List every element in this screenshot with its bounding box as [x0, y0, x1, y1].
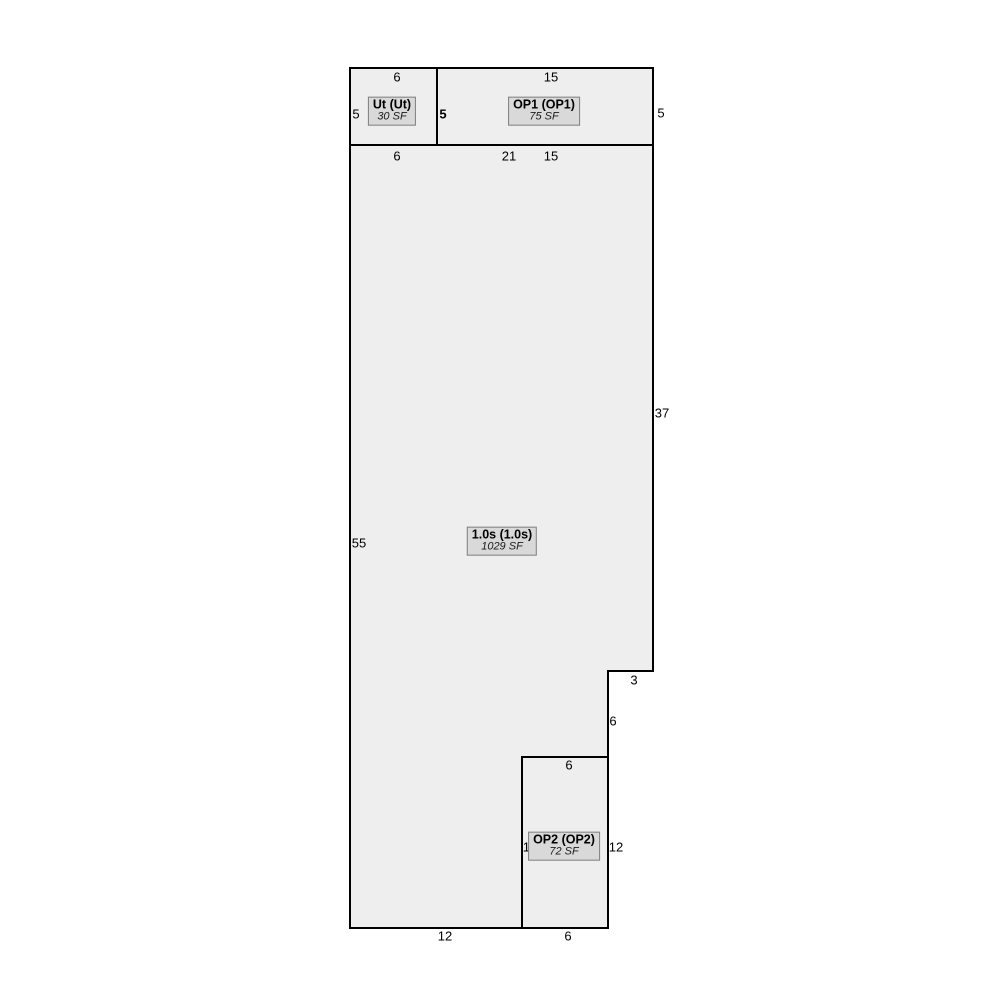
dim-op1-right: 5: [657, 106, 664, 121]
area-label-main: 1.0s (1.0s) 1029 SF: [467, 527, 537, 556]
area-label-op2: OP2 (OP2) 72 SF: [528, 832, 600, 861]
area-label-main-sf: 1029 SF: [472, 542, 532, 554]
area-label-ut: Ut (Ut) 30 SF: [368, 97, 416, 126]
dim-op2-right: 12: [609, 840, 623, 855]
dim-main-right: 37: [655, 406, 669, 421]
dim-ut-bottom: 6: [393, 149, 400, 164]
floorplan-shapes: [0, 0, 1000, 1000]
dim-op2-top: 6: [565, 758, 572, 773]
dim-main-top: 21: [502, 149, 516, 164]
area-label-ut-sf: 30 SF: [373, 112, 411, 124]
dim-main-left: 55: [352, 536, 366, 551]
area-label-op2-sf: 72 SF: [533, 847, 595, 859]
dim-op2-bottom: 6: [564, 929, 571, 944]
dim-main-bottom: 12: [438, 929, 452, 944]
dim-op1-bottom: 15: [544, 149, 558, 164]
area-label-op1-sf: 75 SF: [513, 112, 575, 124]
floorplan-sketch: 6 15 5 5 5 6 21 15 55 37 3 6 12 6 12 12 …: [0, 0, 1000, 1000]
dim-op1-top: 15: [544, 70, 558, 85]
dim-ut-top: 6: [393, 70, 400, 85]
area-label-op1: OP1 (OP1) 75 SF: [508, 97, 580, 126]
dim-ut-op1-shared: 5: [439, 107, 446, 122]
dim-step-top: 3: [630, 673, 637, 688]
dim-step-right: 6: [609, 714, 616, 729]
dim-ut-left: 5: [352, 107, 359, 122]
